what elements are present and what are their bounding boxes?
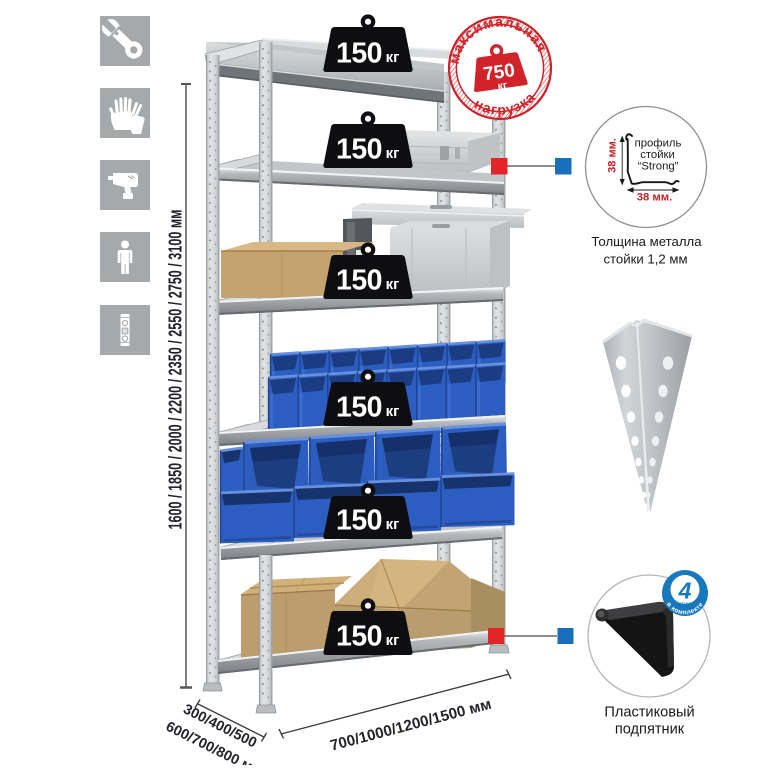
svg-text:кг: кг bbox=[386, 276, 400, 293]
svg-text:Толщина металла: Толщина металла bbox=[591, 234, 702, 249]
svg-text:1600 / 1850 / 2000 / 2200 / 23: 1600 / 1850 / 2000 / 2200 / 2350 / 2550 … bbox=[166, 210, 186, 530]
svg-text:150: 150 bbox=[336, 134, 382, 166]
svg-text:кг: кг bbox=[386, 145, 400, 162]
svg-text:150: 150 bbox=[336, 38, 382, 70]
svg-text:кг: кг bbox=[386, 632, 400, 649]
svg-text:кг: кг bbox=[386, 403, 400, 420]
svg-text:штуки: штуки bbox=[677, 602, 693, 608]
svg-text:стойки: стойки bbox=[640, 149, 675, 161]
svg-text:стойки 1,2 мм: стойки 1,2 мм bbox=[603, 252, 687, 267]
svg-text:подпятник: подпятник bbox=[615, 722, 685, 738]
svg-text:кг: кг bbox=[386, 516, 400, 533]
svg-text:150: 150 bbox=[336, 621, 382, 653]
svg-text:профиль: профиль bbox=[635, 138, 682, 150]
svg-text:4: 4 bbox=[678, 578, 692, 604]
svg-text:150: 150 bbox=[336, 265, 382, 297]
svg-text:150: 150 bbox=[336, 392, 382, 424]
svg-text:38 мм.: 38 мм. bbox=[637, 192, 673, 204]
svg-text:кг: кг bbox=[386, 49, 400, 66]
svg-text:Пластиковый: Пластиковый bbox=[604, 705, 694, 721]
svg-text:“Strong”: “Strong” bbox=[638, 161, 679, 173]
svg-text:150: 150 bbox=[336, 505, 382, 537]
svg-text:38 мм.: 38 мм. bbox=[606, 138, 618, 173]
